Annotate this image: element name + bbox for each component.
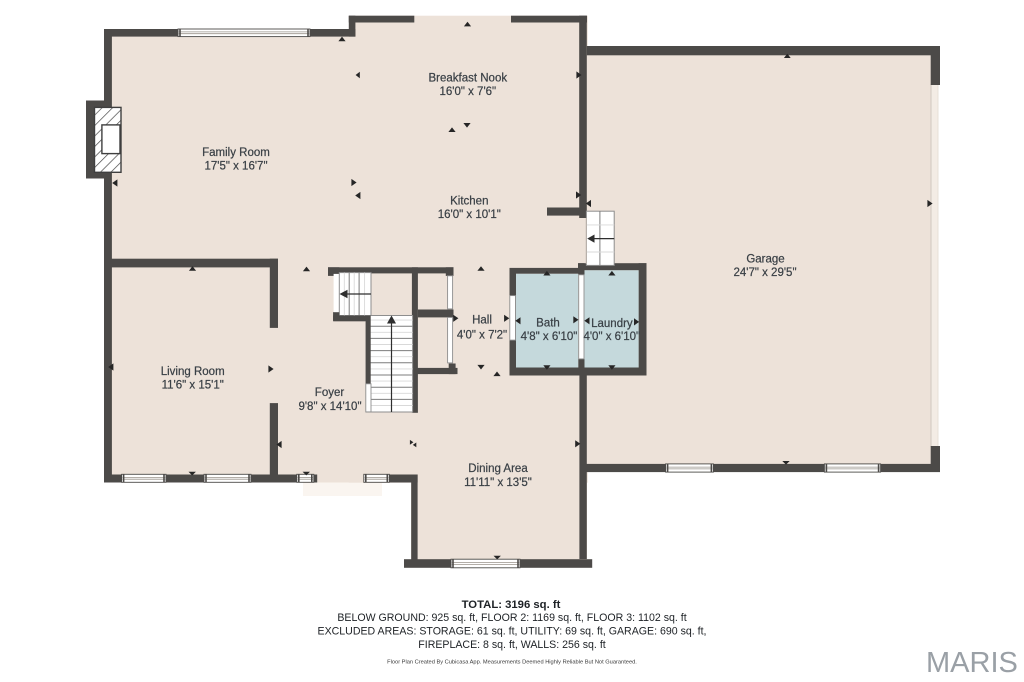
svg-text:Family Room: Family Room [202, 147, 270, 159]
svg-text:Living Room: Living Room [161, 366, 225, 378]
svg-text:16'0" x 7'6": 16'0" x 7'6" [439, 86, 496, 98]
svg-text:Bath: Bath [536, 318, 560, 330]
svg-text:Breakfast Nook: Breakfast Nook [428, 72, 507, 84]
svg-text:BELOW GROUND: 925 sq. ft, FLOO: BELOW GROUND: 925 sq. ft, FLOOR 2: 1169 … [337, 612, 686, 624]
svg-text:FIREPLACE: 8 sq. ft, WALLS: 25: FIREPLACE: 8 sq. ft, WALLS: 256 sq. ft [418, 639, 605, 651]
svg-text:17'5" x 16'7": 17'5" x 16'7" [204, 160, 267, 172]
svg-text:Garage: Garage [746, 254, 784, 266]
svg-text:Dining Area: Dining Area [468, 463, 528, 475]
svg-text:16'0" x 10'1": 16'0" x 10'1" [438, 209, 501, 221]
svg-text:Laundry: Laundry [591, 318, 633, 330]
svg-text:11'11" x 13'5": 11'11" x 13'5" [464, 477, 532, 489]
svg-text:TOTAL: 3196 sq. ft: TOTAL: 3196 sq. ft [462, 599, 561, 611]
svg-text:EXCLUDED AREAS: STORAGE: 61 sq: EXCLUDED AREAS: STORAGE: 61 sq. ft, UTIL… [318, 625, 707, 637]
svg-text:Floor Plan Created By Cubicasa: Floor Plan Created By Cubicasa App. Meas… [387, 660, 637, 666]
svg-text:4'0" x 6'10": 4'0" x 6'10" [583, 331, 640, 343]
svg-text:24'7" x 29'5": 24'7" x 29'5" [733, 267, 796, 279]
svg-text:11'6" x 15'1": 11'6" x 15'1" [162, 379, 224, 391]
svg-text:Hall: Hall [472, 315, 492, 327]
svg-text:4'8" x 6'10": 4'8" x 6'10" [521, 331, 578, 343]
svg-text:9'8" x 14'10": 9'8" x 14'10" [298, 401, 361, 413]
svg-text:4'0" x 7'2": 4'0" x 7'2" [457, 329, 507, 341]
svg-text:Kitchen: Kitchen [450, 196, 488, 208]
svg-text:MARIS: MARIS [926, 647, 1018, 679]
svg-text:Foyer: Foyer [315, 387, 345, 399]
